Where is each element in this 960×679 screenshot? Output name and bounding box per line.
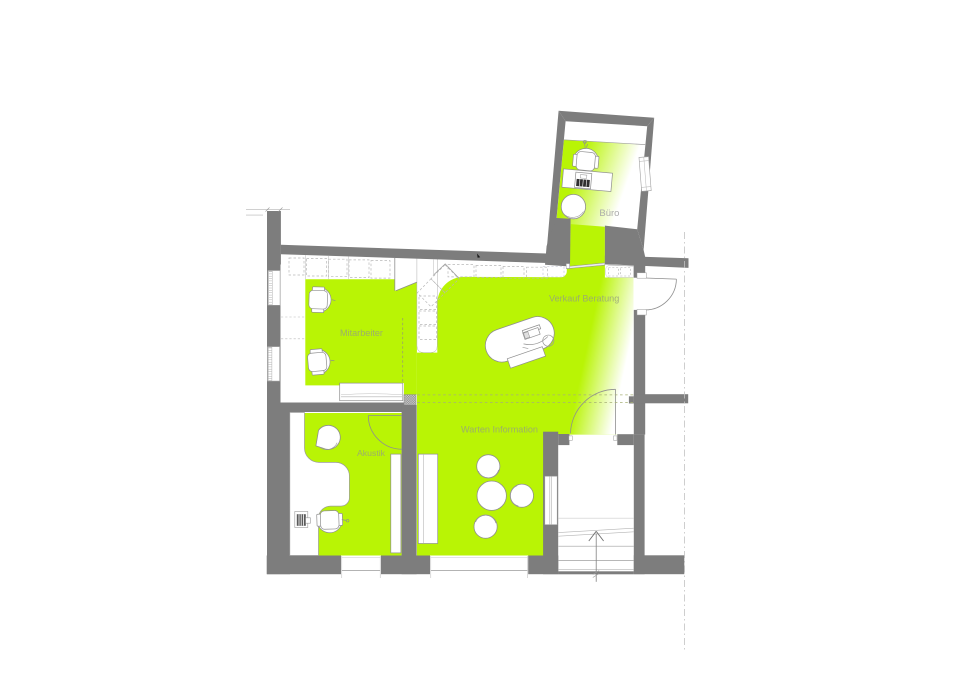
svg-text:Warten Information: Warten Information xyxy=(461,425,538,435)
svg-text:Akustik: Akustik xyxy=(357,448,386,458)
svg-text:Mitarbeiter: Mitarbeiter xyxy=(340,328,383,338)
svg-text:Verkauf Beratung: Verkauf Beratung xyxy=(549,293,619,303)
svg-text:Büro: Büro xyxy=(599,208,619,219)
